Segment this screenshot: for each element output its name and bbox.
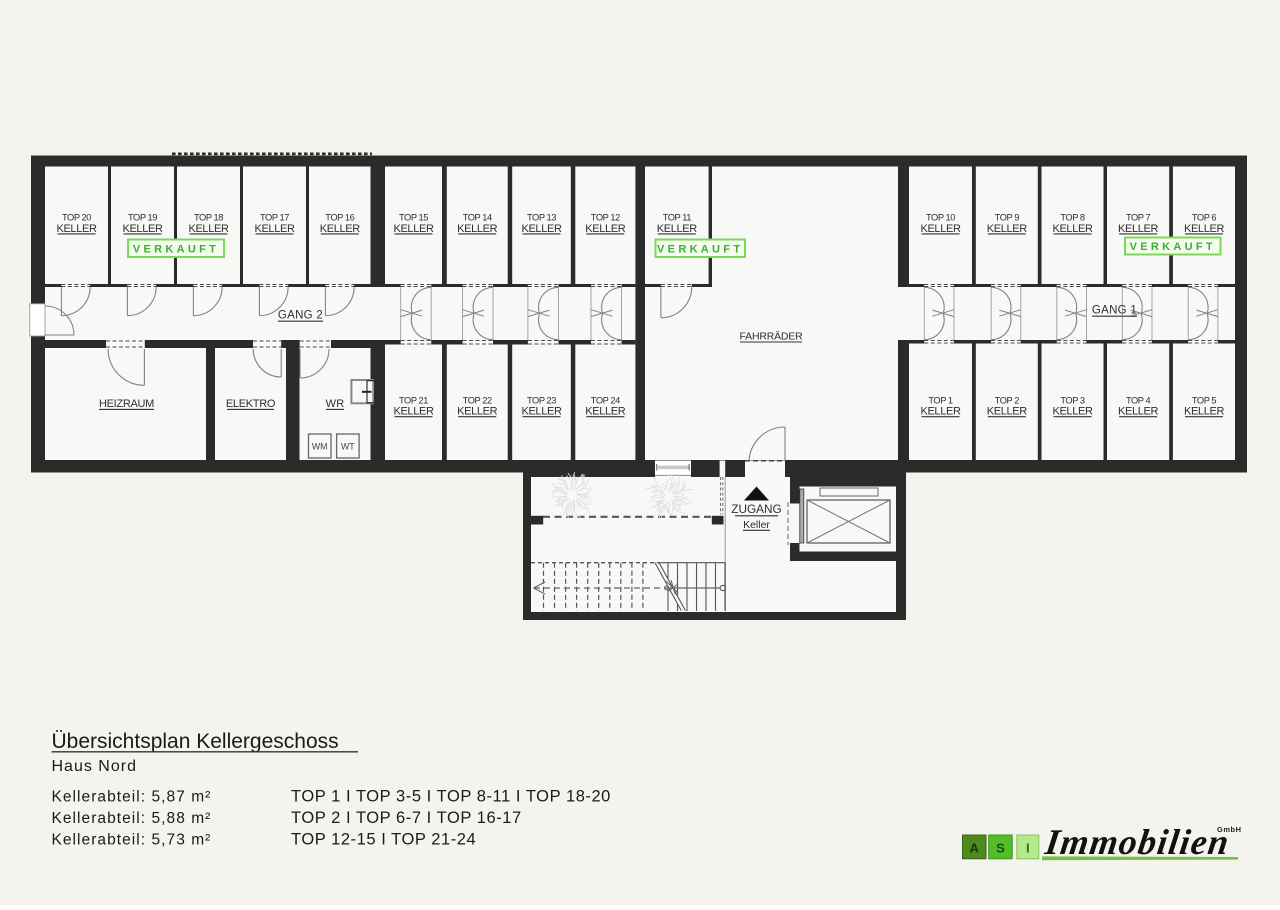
svg-text:TOP 9: TOP 9 xyxy=(995,213,1020,223)
svg-text:Kellerabteil: 5,87 m²: Kellerabteil: 5,87 m² xyxy=(52,789,212,806)
svg-text:TOP 2: TOP 2 xyxy=(995,395,1020,405)
svg-text:KELLER: KELLER xyxy=(393,406,433,418)
svg-text:KELLER: KELLER xyxy=(1052,406,1092,418)
svg-text:VERKAUFT: VERKAUFT xyxy=(133,243,219,255)
svg-text:TOP 7: TOP 7 xyxy=(1126,213,1151,223)
svg-text:TOP 12: TOP 12 xyxy=(591,213,620,223)
svg-text:KELLER: KELLER xyxy=(56,223,96,235)
svg-text:TOP 22: TOP 22 xyxy=(463,395,492,405)
svg-text:VERKAUFT: VERKAUFT xyxy=(1130,241,1216,253)
svg-text:GmbH: GmbH xyxy=(1217,825,1242,834)
svg-text:WT: WT xyxy=(341,441,355,451)
svg-text:TOP 24: TOP 24 xyxy=(591,395,620,405)
svg-text:KELLER: KELLER xyxy=(1184,223,1224,235)
svg-text:KELLER: KELLER xyxy=(521,223,561,235)
svg-text:KELLER: KELLER xyxy=(920,406,960,418)
svg-text:I: I xyxy=(1026,840,1030,855)
svg-text:WR: WR xyxy=(326,398,345,410)
svg-text:TOP 21: TOP 21 xyxy=(399,395,428,405)
svg-text:GANG 2: GANG 2 xyxy=(278,310,323,322)
svg-text:KELLER: KELLER xyxy=(320,223,360,235)
svg-text:KELLER: KELLER xyxy=(1052,223,1092,235)
svg-text:Haus Nord: Haus Nord xyxy=(52,758,137,775)
svg-text:KELLER: KELLER xyxy=(122,223,162,235)
svg-text:KELLER: KELLER xyxy=(987,406,1027,418)
svg-text:A: A xyxy=(970,840,980,855)
svg-text:KELLER: KELLER xyxy=(1118,406,1158,418)
svg-text:TOP 11: TOP 11 xyxy=(663,213,692,223)
svg-text:VERKAUFT: VERKAUFT xyxy=(657,243,743,255)
svg-text:TOP 23: TOP 23 xyxy=(527,395,556,405)
svg-text:Übersichtsplan Kellergeschoss: Übersichtsplan Kellergeschoss xyxy=(52,730,339,753)
svg-text:TOP 17: TOP 17 xyxy=(260,213,289,223)
svg-text:TOP 1 I TOP 3-5 I TOP 8-11 I T: TOP 1 I TOP 3-5 I TOP 8-11 I TOP 18-20 xyxy=(291,788,611,806)
svg-text:Keller: Keller xyxy=(743,519,770,531)
svg-text:ELEKTRO: ELEKTRO xyxy=(226,398,276,410)
svg-text:Kellerabteil: 5,88 m²: Kellerabteil: 5,88 m² xyxy=(52,810,212,827)
svg-text:KELLER: KELLER xyxy=(920,223,960,235)
svg-text:TOP 14: TOP 14 xyxy=(463,213,492,223)
svg-text:S: S xyxy=(996,840,1005,855)
svg-text:FAHRRÄDER: FAHRRÄDER xyxy=(740,331,804,343)
svg-text:KELLER: KELLER xyxy=(393,223,433,235)
svg-text:TOP 5: TOP 5 xyxy=(1192,395,1217,405)
svg-text:TOP 15: TOP 15 xyxy=(399,213,428,223)
svg-text:HEIZRAUM: HEIZRAUM xyxy=(99,398,154,410)
svg-text:TOP 16: TOP 16 xyxy=(325,213,354,223)
svg-text:WM: WM xyxy=(312,441,328,451)
svg-text:GANG 1: GANG 1 xyxy=(1092,305,1137,317)
svg-text:KELLER: KELLER xyxy=(521,406,561,418)
svg-text:TOP 13: TOP 13 xyxy=(527,213,556,223)
svg-text:KELLER: KELLER xyxy=(585,223,625,235)
svg-text:KELLER: KELLER xyxy=(987,223,1027,235)
svg-text:TOP 8: TOP 8 xyxy=(1060,213,1085,223)
svg-text:TOP 20: TOP 20 xyxy=(62,213,91,223)
svg-text:KELLER: KELLER xyxy=(1118,223,1158,235)
svg-text:Immobilien: Immobilien xyxy=(1042,822,1233,862)
svg-text:KELLER: KELLER xyxy=(457,223,497,235)
svg-text:TOP 18: TOP 18 xyxy=(194,213,223,223)
svg-text:Kellerabteil: 5,73 m²: Kellerabteil: 5,73 m² xyxy=(52,832,212,849)
svg-text:TOP 12-15 I TOP 21-24: TOP 12-15 I TOP 21-24 xyxy=(291,831,476,849)
svg-text:TOP 3: TOP 3 xyxy=(1060,395,1085,405)
svg-text:ZUGANG: ZUGANG xyxy=(731,502,781,516)
svg-text:TOP 2 I TOP 6-7 I TOP 16-17: TOP 2 I TOP 6-7 I TOP 16-17 xyxy=(291,809,522,827)
svg-text:TOP 10: TOP 10 xyxy=(926,213,955,223)
svg-text:KELLER: KELLER xyxy=(457,406,497,418)
svg-text:TOP 6: TOP 6 xyxy=(1192,213,1217,223)
svg-text:KELLER: KELLER xyxy=(254,223,294,235)
svg-text:KELLER: KELLER xyxy=(657,223,697,235)
svg-text:KELLER: KELLER xyxy=(188,223,228,235)
svg-text:TOP 1: TOP 1 xyxy=(928,395,953,405)
svg-text:KELLER: KELLER xyxy=(585,406,625,418)
svg-text:TOP 19: TOP 19 xyxy=(128,213,157,223)
svg-text:TOP 4: TOP 4 xyxy=(1126,395,1151,405)
svg-text:KELLER: KELLER xyxy=(1184,406,1224,418)
